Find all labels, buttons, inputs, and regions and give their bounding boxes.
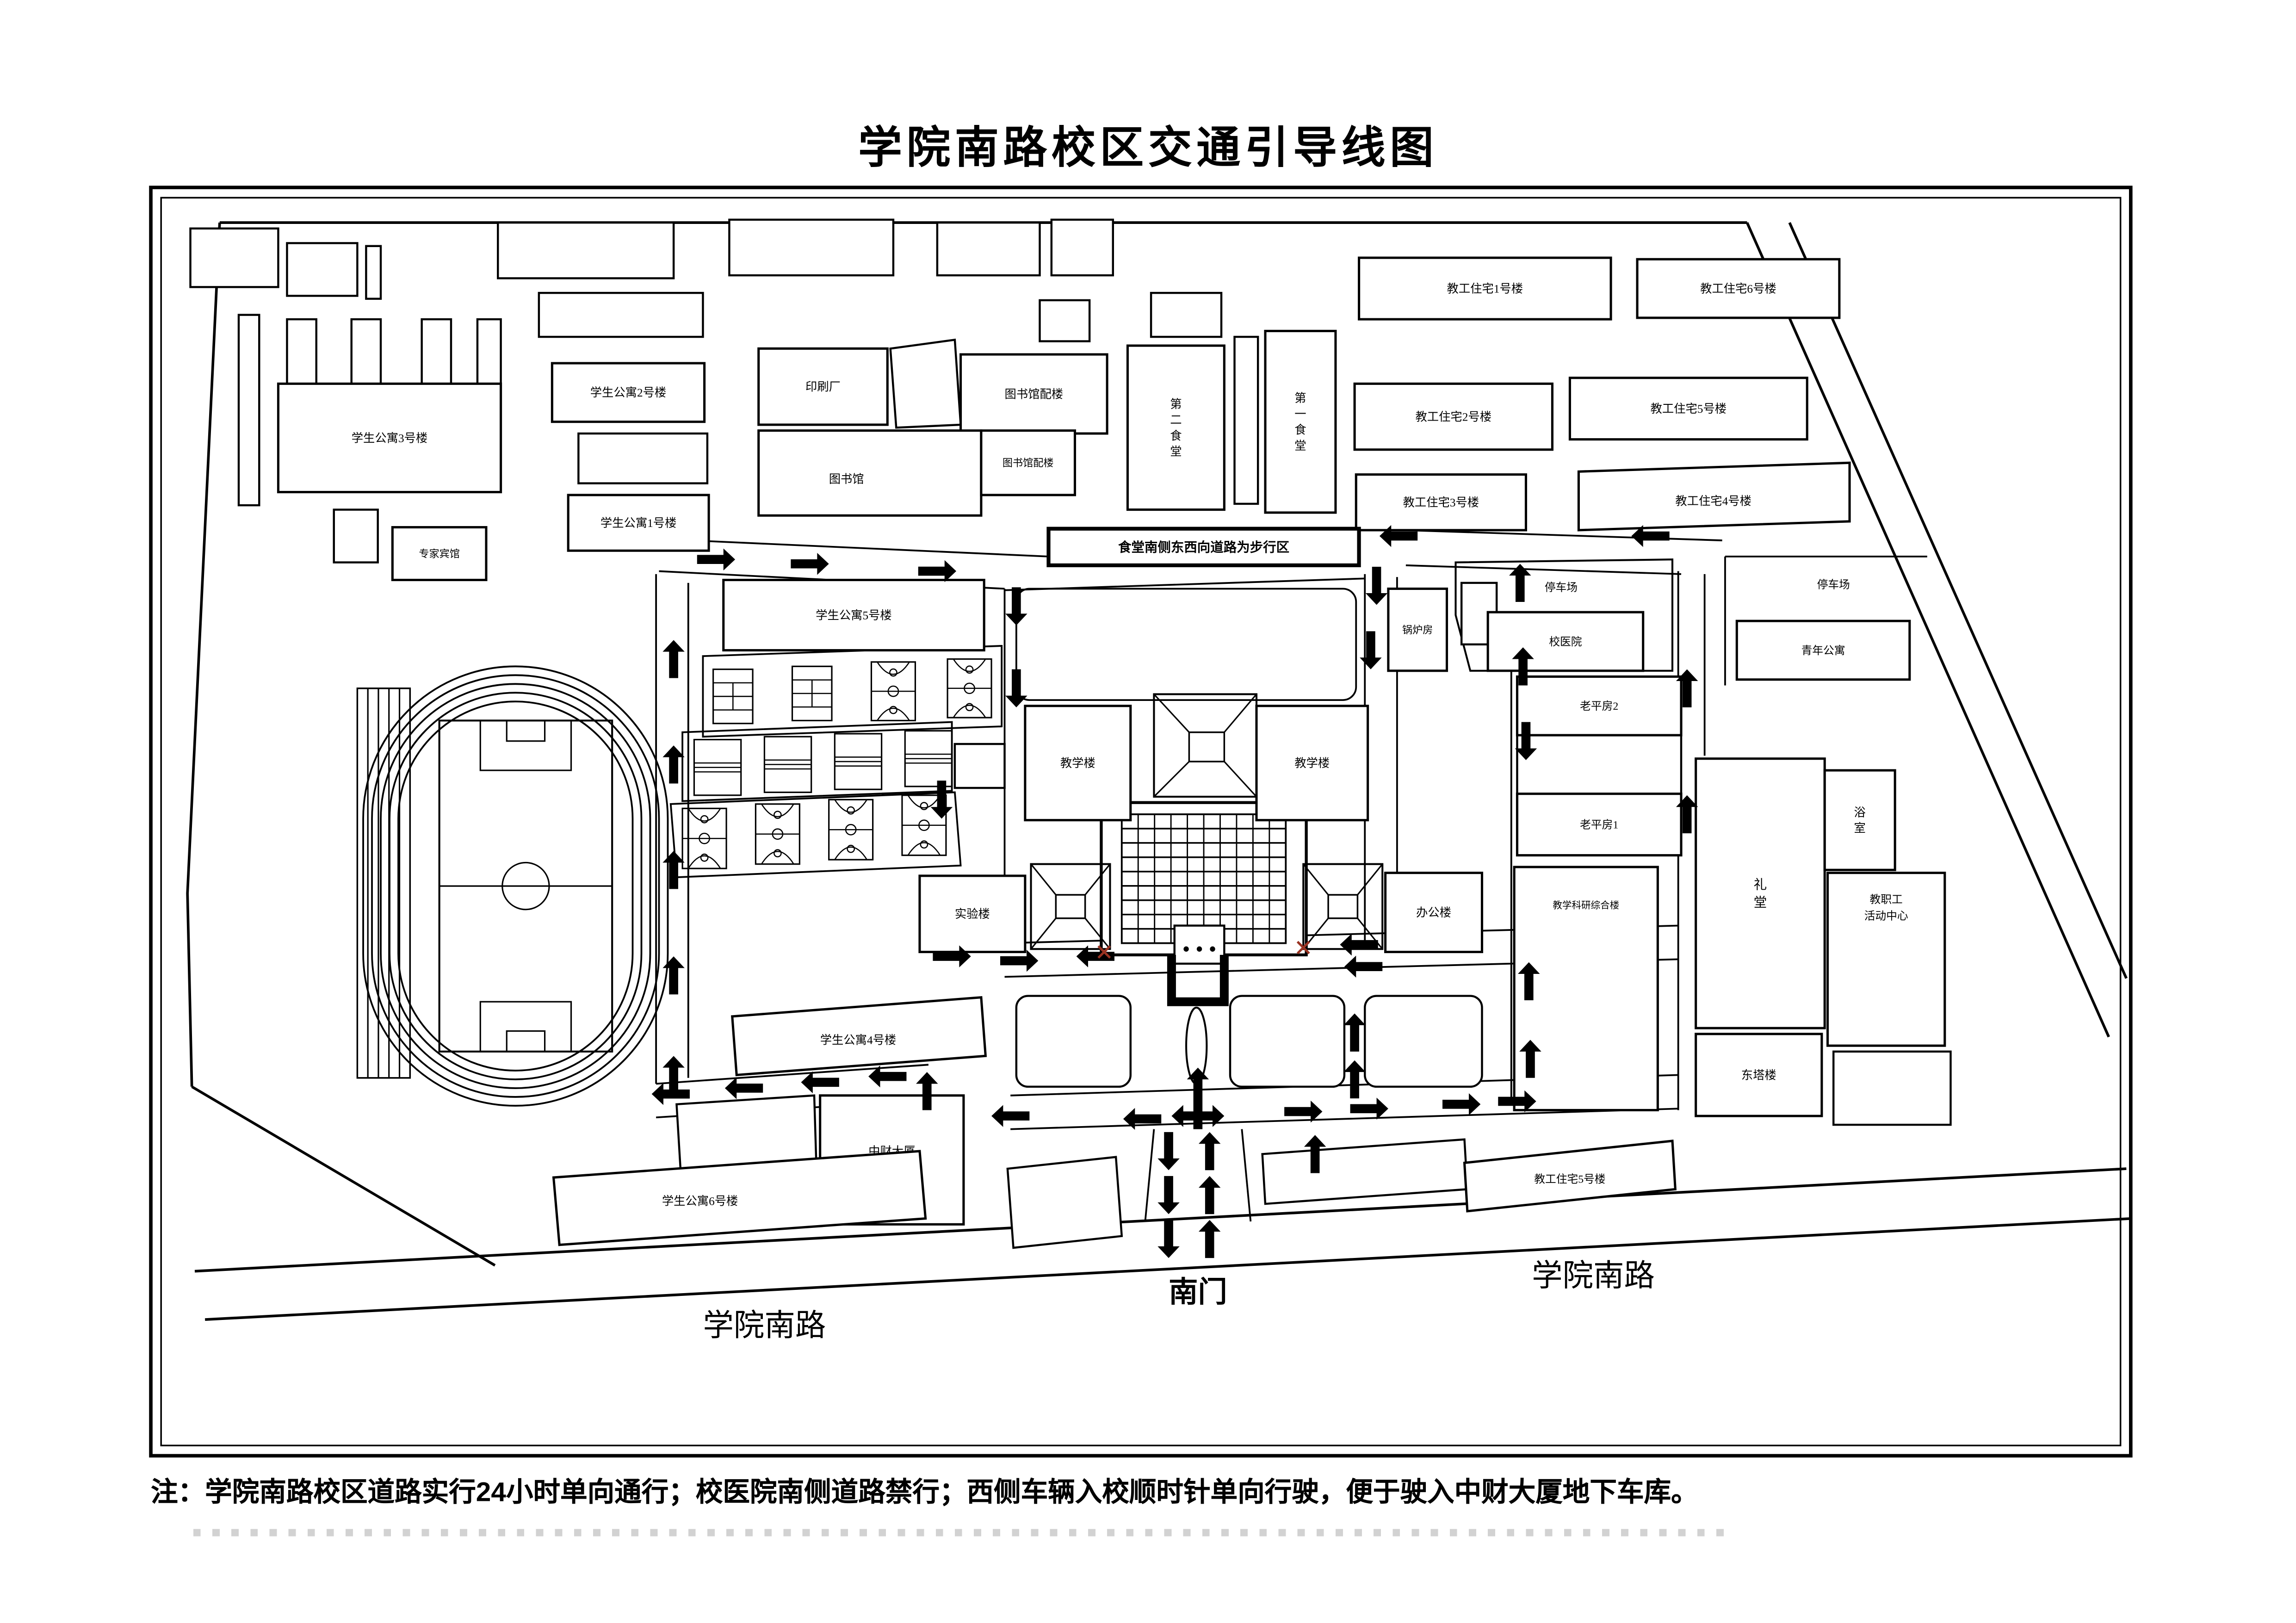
building-bath-house <box>1825 770 1895 870</box>
building-label-student-apt-5: 学生公寓5号楼 <box>816 609 892 622</box>
building-label-expert-hotel: 专家宾馆 <box>419 548 460 559</box>
building-label-staff-res-6: 教工住宅6号楼 <box>1700 282 1776 295</box>
map-note: 注：学院南路校区道路实行24小时单向通行；校医院南侧道路禁行；西侧车辆入校顺时针… <box>151 1472 2201 1510</box>
entry-dot <box>1197 947 1202 952</box>
building-label-staff-res-5-south: 教工住宅5号楼 <box>1534 1173 1605 1186</box>
building-label-library-annex-south: 图书馆配楼 <box>1003 457 1054 469</box>
building-unlabeled <box>477 319 501 387</box>
building-unlabeled <box>891 340 961 427</box>
area-label-parking-lot-east: 停车场 <box>1817 578 1850 591</box>
building-label-student-apt-2: 学生公寓2号楼 <box>590 386 667 399</box>
building-unlabeled <box>287 243 357 296</box>
building-label-student-apt-6: 学生公寓6号楼 <box>662 1195 738 1208</box>
building-label-student-apt-4: 学生公寓4号楼 <box>820 1034 897 1047</box>
building-unlabeled <box>422 319 451 387</box>
building-unlabeled <box>498 223 674 278</box>
building-label-office-bldg: 办公楼 <box>1416 906 1451 919</box>
building-label-teaching-bldg-west: 教学楼 <box>1060 757 1095 770</box>
pedestrian-banner-text: 食堂南侧东西向道路为步行区 <box>1118 539 1289 555</box>
building-unlabeled <box>539 293 703 337</box>
building-label2-staff-activity-center: 活动中心 <box>1864 910 1908 923</box>
building-label-east-tower: 东塔楼 <box>1741 1069 1776 1082</box>
building-unlabeled <box>1151 293 1221 337</box>
building-label-staff-res-3: 教工住宅3号楼 <box>1403 496 1479 509</box>
building-unlabeled <box>334 510 378 563</box>
building-label-staff-res-4: 教工住宅4号楼 <box>1675 495 1751 508</box>
building-label-clinic: 校医院 <box>1549 636 1582 648</box>
entry-dot <box>1210 947 1215 952</box>
building-label-student-apt-1: 学生公寓1号楼 <box>600 517 677 530</box>
building-label-library-annex-north: 图书馆配楼 <box>1005 388 1064 401</box>
building-library <box>759 431 981 516</box>
building-unlabeled <box>1040 300 1090 341</box>
building-unlabeled <box>1517 735 1681 794</box>
building-label-research-bldg: 教学科研综合楼 <box>1553 900 1619 911</box>
building-label-youth-apt: 青年公寓 <box>1801 644 1845 657</box>
building-label-staff-res-1: 教工住宅1号楼 <box>1447 282 1523 295</box>
south-gate-label: 南门 <box>1169 1276 1227 1308</box>
scan-artifact <box>193 1529 1731 1536</box>
street-xueyuan-south-east: 学院南路 <box>1532 1259 1655 1293</box>
building-canteen-2 <box>1127 346 1224 510</box>
building-label-staff-activity-center: 教职工 <box>1870 893 1903 906</box>
building-unlabeled <box>1052 220 1113 275</box>
building-label-print-shop: 印刷厂 <box>805 381 841 394</box>
entry-dot <box>1183 947 1188 952</box>
building-unlabeled <box>1833 1052 1950 1125</box>
building-label-staff-res-2: 教工住宅2号楼 <box>1415 410 1491 423</box>
building-label-library: 图书馆 <box>829 473 864 486</box>
building-unlabeled <box>955 744 1005 788</box>
building-canteen-1 <box>1265 331 1336 513</box>
block-unlabeled <box>1016 996 1131 1087</box>
building-unlabeled <box>1235 337 1258 504</box>
building-unlabeled <box>191 229 278 287</box>
building-label-teaching-bldg-east: 教学楼 <box>1294 757 1330 770</box>
page: 学院南路校区交通引导线图 学生公寓2号楼学生公寓3号楼学生公寓1号楼专家宾馆印刷… <box>0 0 2296 1623</box>
building-label-staff-res-5-north: 教工住宅5号楼 <box>1651 403 1727 415</box>
block-unlabeled <box>1230 996 1344 1087</box>
block-unlabeled <box>1365 996 1482 1087</box>
building-unlabeled <box>366 246 381 299</box>
building-unlabeled <box>239 315 259 506</box>
area-label-parking-lot-west: 停车场 <box>1545 582 1578 594</box>
building-label-old-row-2: 老平房2 <box>1580 700 1618 712</box>
street-xueyuan-south-west: 学院南路 <box>703 1309 826 1343</box>
building-label-old-row-1: 老平房1 <box>1580 818 1618 831</box>
building-label-boiler-house: 锅炉房 <box>1402 624 1433 636</box>
campus-map: 学生公寓2号楼学生公寓3号楼学生公寓1号楼专家宾馆印刷厂图书馆配楼图书馆图书馆配… <box>0 0 2296 1623</box>
building-label-lab-bldg: 实验楼 <box>955 908 990 921</box>
building-label-student-apt-3: 学生公寓3号楼 <box>352 432 428 445</box>
building-unlabeled <box>1008 1157 1122 1248</box>
building-unlabeled <box>937 223 1040 275</box>
main-building-entry <box>1175 926 1225 964</box>
building-auditorium <box>1696 759 1825 1028</box>
building-unlabeled <box>729 220 893 275</box>
building-unlabeled <box>352 319 381 387</box>
building-unlabeled <box>578 434 707 483</box>
building-unlabeled <box>287 319 316 387</box>
